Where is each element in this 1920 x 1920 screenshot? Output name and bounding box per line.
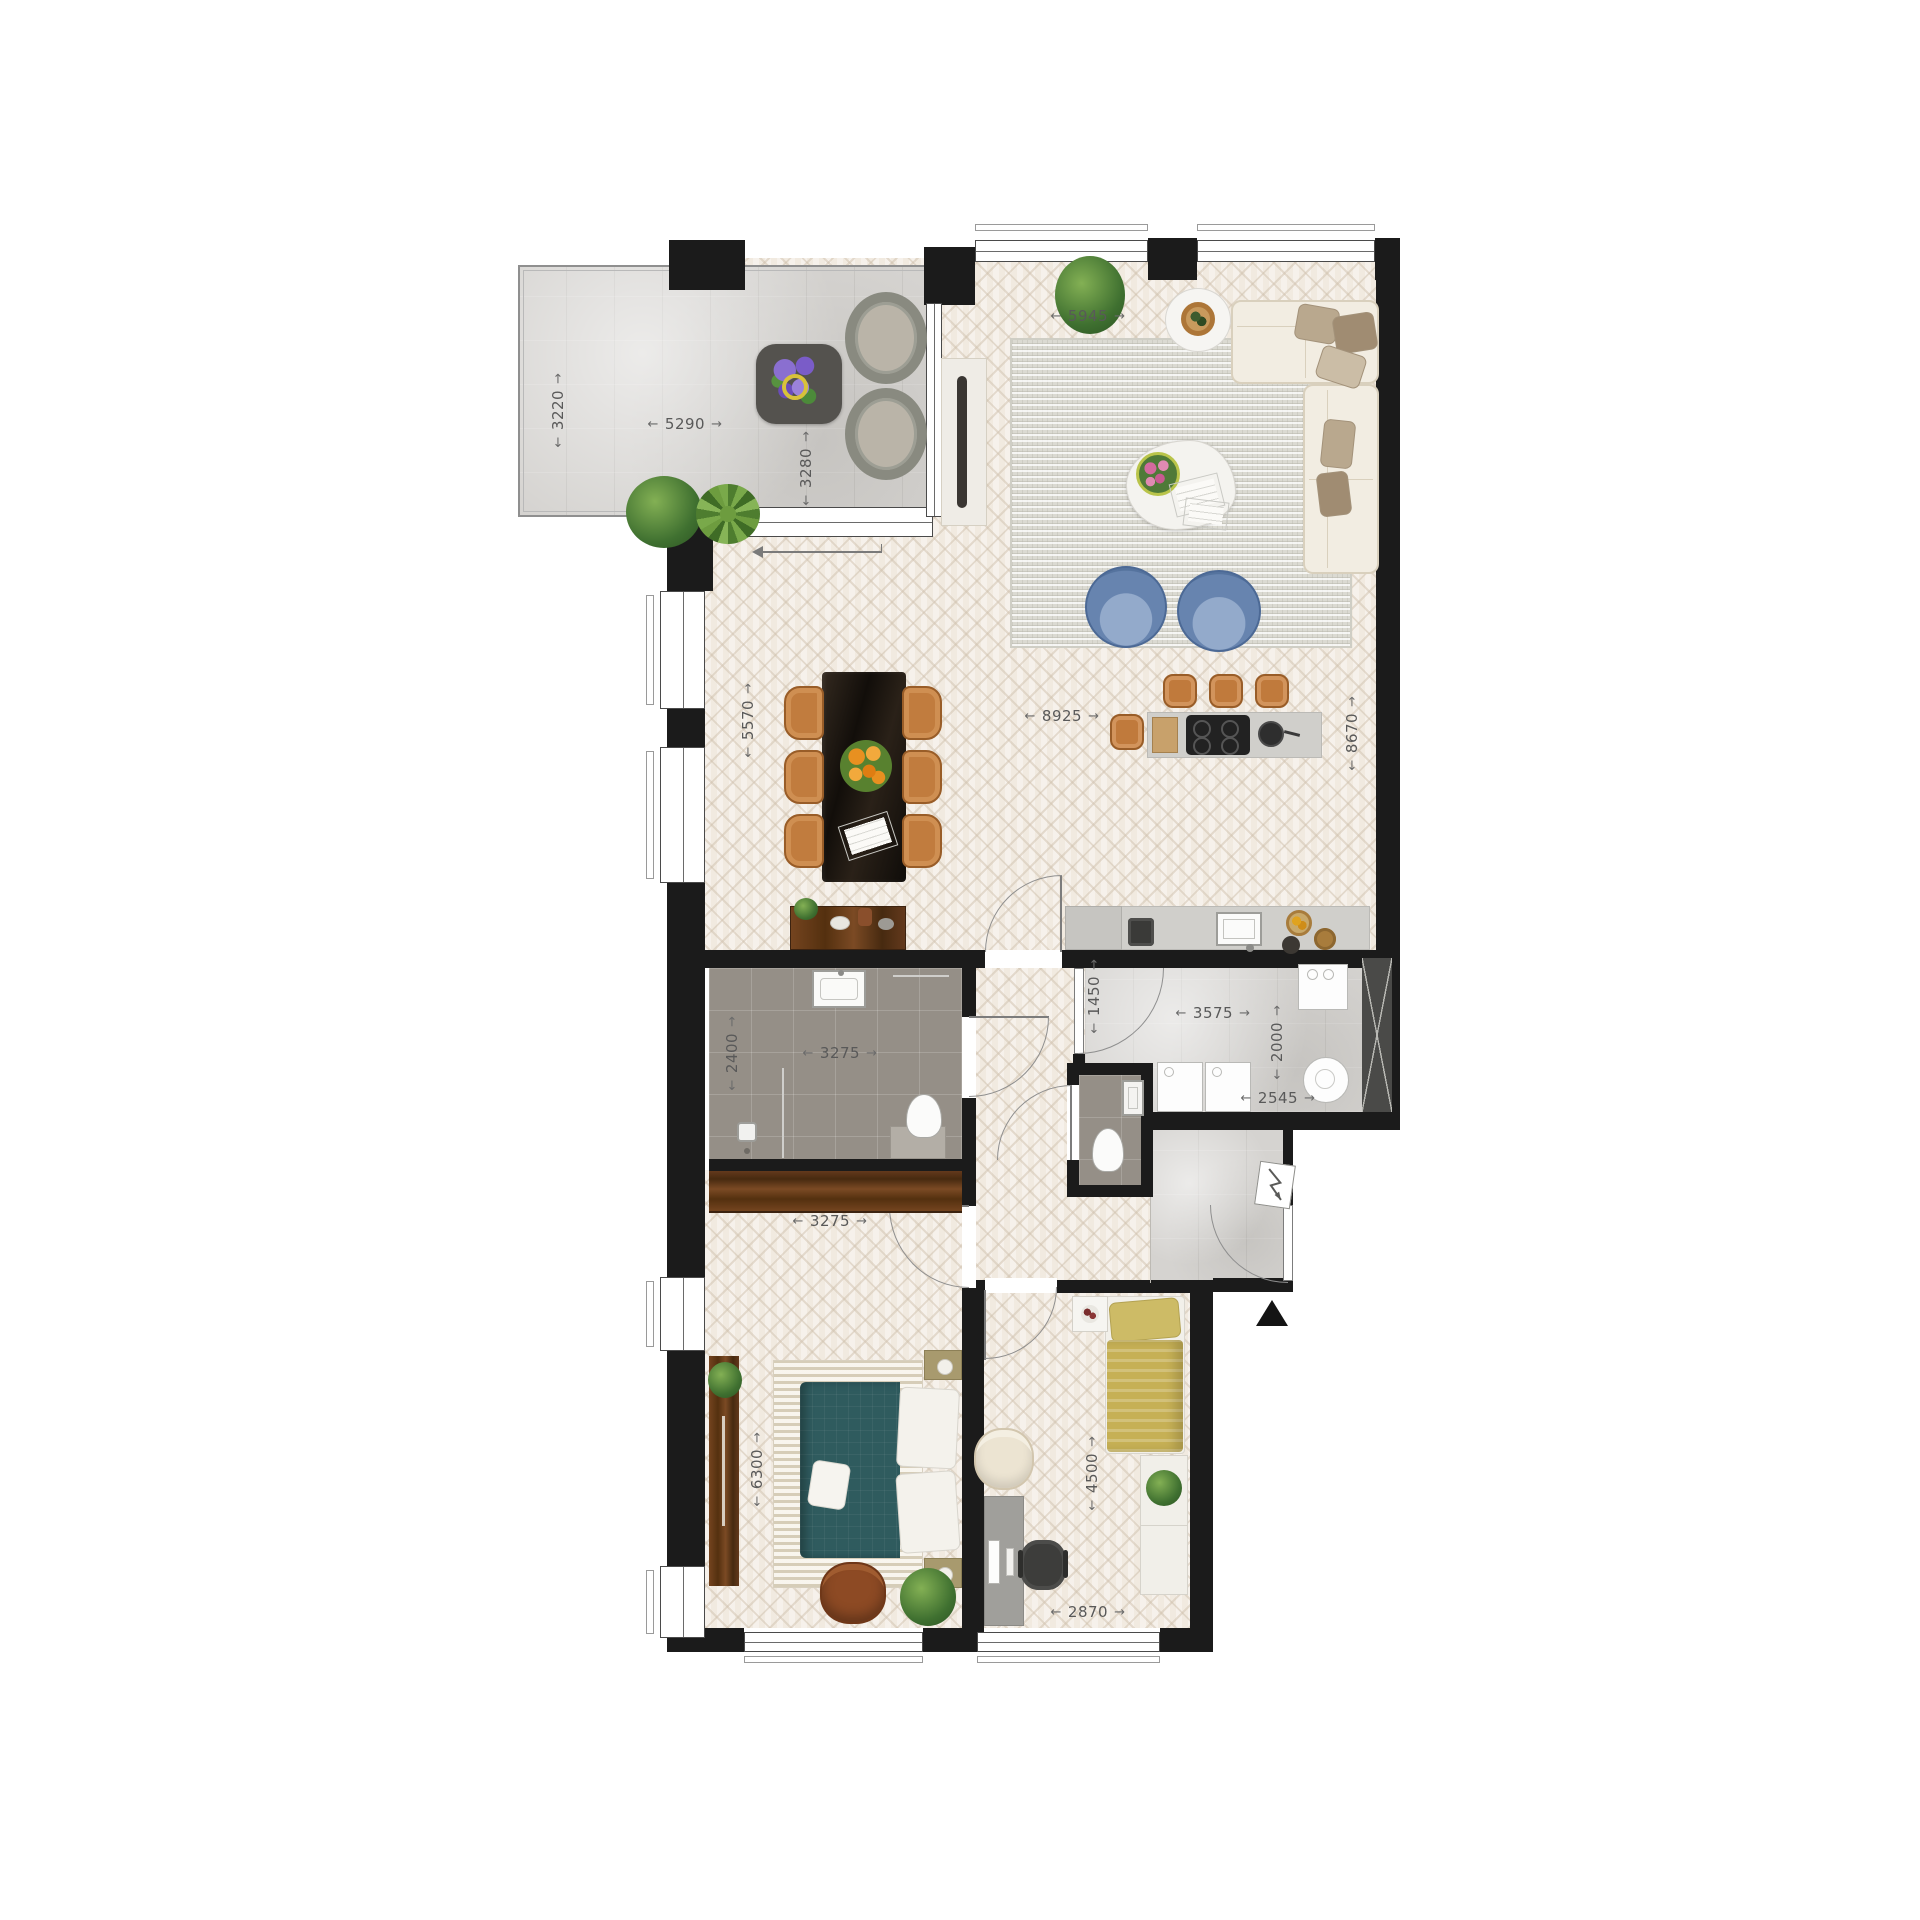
- office-chair: [1020, 1540, 1066, 1590]
- magazines: [1182, 497, 1229, 530]
- sofa-pillow: [1320, 418, 1357, 469]
- bathroom-sink: [812, 970, 866, 1008]
- sideboard-plant: [794, 898, 818, 920]
- wall: [924, 247, 975, 305]
- balcony-glass-wall: [926, 303, 942, 517]
- bar-stool: [1255, 674, 1289, 708]
- meter-cupboard: [1254, 1161, 1296, 1210]
- sliding-direction-arrow: [752, 544, 882, 560]
- dining-chair: [784, 686, 824, 740]
- wall-left: [667, 1351, 705, 1566]
- bed-pillow: [896, 1386, 960, 1469]
- wc-wall: [1067, 1063, 1079, 1085]
- keyboard: [1006, 1548, 1014, 1576]
- balcony-chair: [845, 388, 927, 480]
- towel-bar: [893, 972, 949, 980]
- dining-chair: [902, 686, 942, 740]
- faucet: [1246, 944, 1254, 952]
- flower-bowl: [782, 374, 808, 400]
- floor-edge: [1150, 1197, 1151, 1283]
- bed2-duvet: [1107, 1340, 1183, 1452]
- wall-left: [667, 883, 705, 1277]
- window-sill: [977, 1656, 1160, 1663]
- wall: [1190, 1280, 1213, 1652]
- window: [660, 1566, 705, 1638]
- shower-glass-panel: [782, 1068, 784, 1158]
- bar-stool: [1110, 714, 1144, 750]
- window-sill: [646, 751, 654, 879]
- wall: [669, 240, 745, 290]
- window-sill: [744, 1656, 923, 1663]
- door-opening: [985, 950, 1062, 968]
- lounge-chair-cream: [974, 1428, 1034, 1490]
- cutting-board: [1152, 717, 1178, 753]
- window-sill: [975, 224, 1148, 231]
- washing-machine: [1157, 1062, 1203, 1112]
- wc-toilet: [1092, 1128, 1124, 1172]
- wall: [1062, 950, 1400, 968]
- nightstand-bedroom2: [1072, 1296, 1108, 1332]
- nightstand: [924, 1350, 962, 1380]
- lounge-chair-blue: [1085, 566, 1167, 648]
- kitchen-sink: [1216, 912, 1262, 946]
- bar-stool: [1209, 674, 1243, 708]
- floor-plan: ←3220→←5290→←3280→←5945→←8925→←5570→←867…: [0, 0, 1920, 1920]
- wall: [667, 709, 705, 747]
- tall-cabinet-fridge: [1065, 906, 1122, 950]
- window: [660, 1277, 705, 1351]
- window: [1197, 240, 1375, 262]
- bedroom1-cabinet-plant: [708, 1362, 742, 1398]
- pan: [1258, 721, 1284, 747]
- built-in-wardrobe: [709, 1171, 962, 1213]
- wall: [709, 1159, 962, 1171]
- sideboard-vase: [858, 908, 872, 926]
- window: [660, 591, 705, 709]
- window: [975, 240, 1148, 262]
- shower-drain: [744, 1148, 750, 1154]
- armchair-leather: [820, 1562, 886, 1624]
- wall: [1057, 1280, 1190, 1293]
- dining-chair: [902, 750, 942, 804]
- wall: [1141, 1112, 1400, 1130]
- dining-chair: [902, 814, 942, 868]
- lightning-icon: [1255, 1162, 1293, 1207]
- technical-shaft: [1362, 958, 1392, 1112]
- wooden-tray: [1314, 928, 1336, 950]
- bed-pillow: [895, 1470, 960, 1554]
- window-sill: [1197, 224, 1375, 231]
- window: [744, 1632, 923, 1652]
- entrance-marker-icon: [1256, 1300, 1288, 1326]
- cooktop: [1186, 715, 1250, 755]
- wooden-bowl: [1181, 302, 1215, 336]
- sideboard-sculpture: [957, 376, 967, 508]
- lounge-chair-blue: [1177, 570, 1261, 652]
- balcony-plant: [626, 476, 702, 548]
- window: [660, 747, 705, 883]
- wall: [962, 1098, 976, 1206]
- bed2-pillow: [1108, 1297, 1181, 1343]
- dining-chair: [784, 814, 824, 868]
- bar-stool: [1163, 674, 1197, 708]
- serving-tray: [1282, 936, 1300, 954]
- balcony-chair: [845, 292, 927, 384]
- dining-flowers: [840, 740, 892, 792]
- window-sill: [646, 595, 654, 705]
- window: [977, 1632, 1160, 1652]
- bedroom1-plant: [900, 1568, 956, 1626]
- toilet: [906, 1094, 942, 1138]
- wc-wall: [1067, 1160, 1079, 1197]
- wc-niche-sink: [1122, 1080, 1144, 1116]
- shelf-plant: [1146, 1470, 1182, 1506]
- sideboard-dish: [830, 916, 850, 930]
- coffee-machine: [1128, 918, 1154, 946]
- sofa-pillow: [1315, 470, 1352, 518]
- boiler: [1303, 1057, 1349, 1103]
- shower-head: [737, 1122, 757, 1142]
- wall: [1148, 238, 1197, 280]
- fruit-bowl: [1286, 910, 1312, 936]
- wall: [1073, 1054, 1085, 1063]
- window-sill: [646, 1570, 654, 1634]
- balcony-agave-plant: [696, 484, 760, 544]
- bed-throw: [807, 1459, 852, 1510]
- monitor: [988, 1540, 1000, 1584]
- dryer: [1205, 1062, 1251, 1112]
- sideboard-bowl: [878, 918, 894, 930]
- ventilation-unit: [1298, 964, 1348, 1010]
- living-plant: [1055, 256, 1125, 334]
- dining-chair: [784, 750, 824, 804]
- window-sill: [646, 1281, 654, 1347]
- wall: [667, 950, 985, 968]
